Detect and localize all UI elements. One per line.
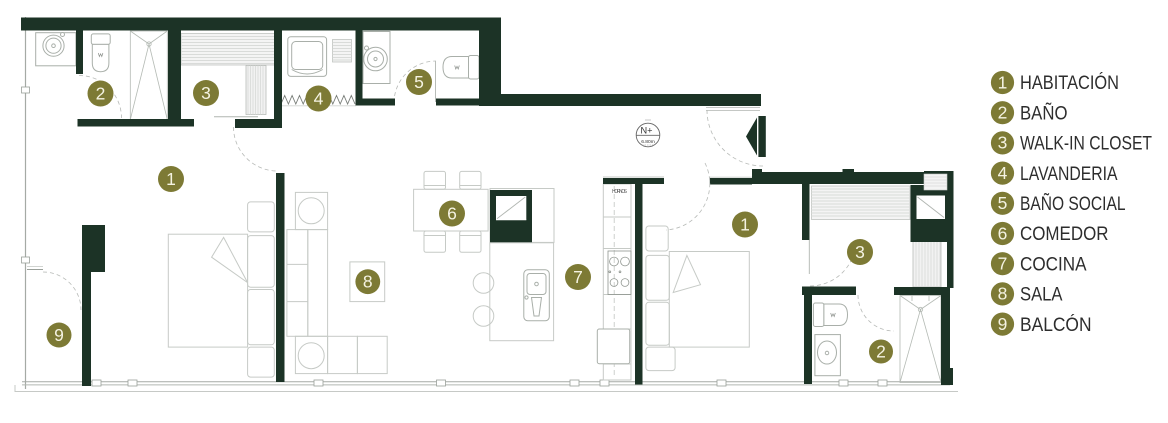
svg-text:HABITACIÓN: HABITACIÓN (1020, 72, 1119, 94)
svg-text:COMEDOR: COMEDOR (1020, 224, 1109, 245)
svg-text:6: 6 (447, 204, 457, 224)
svg-text:1: 1 (998, 72, 1008, 92)
svg-text:SALA: SALA (1020, 285, 1063, 306)
svg-text:2: 2 (96, 84, 106, 104)
svg-text:BAÑO: BAÑO (1020, 102, 1068, 124)
svg-text:BALCÓN: BALCÓN (1020, 314, 1092, 336)
svg-text:8: 8 (998, 284, 1008, 304)
svg-text:7: 7 (573, 267, 583, 287)
svg-text:2: 2 (998, 103, 1008, 123)
svg-text:3: 3 (855, 242, 865, 262)
svg-text:BAÑO SOCIAL: BAÑO SOCIAL (1020, 193, 1126, 215)
svg-text:HORNOS: HORNOS (612, 189, 628, 195)
svg-text:9: 9 (54, 325, 64, 345)
svg-text:1: 1 (166, 169, 176, 189)
svg-text:LAVANDERIA: LAVANDERIA (1020, 164, 1118, 185)
svg-text:2: 2 (876, 342, 886, 362)
svg-text:7: 7 (998, 254, 1008, 274)
svg-text:8: 8 (363, 272, 373, 292)
svg-text:1: 1 (740, 215, 750, 235)
svg-text:WALK-IN CLOSET: WALK-IN CLOSET (1020, 134, 1152, 155)
svg-text:4: 4 (998, 163, 1008, 183)
svg-text:5: 5 (998, 193, 1008, 213)
svg-text:6.80m: 6.80m (641, 139, 655, 145)
svg-text:4: 4 (314, 89, 324, 109)
svg-text:COCINA: COCINA (1020, 254, 1087, 275)
svg-text:6: 6 (998, 223, 1008, 243)
svg-text:5: 5 (414, 72, 424, 92)
svg-text:3: 3 (998, 133, 1008, 153)
svg-text:N+: N+ (640, 125, 652, 135)
svg-text:9: 9 (998, 314, 1008, 334)
svg-text:3: 3 (201, 83, 211, 103)
